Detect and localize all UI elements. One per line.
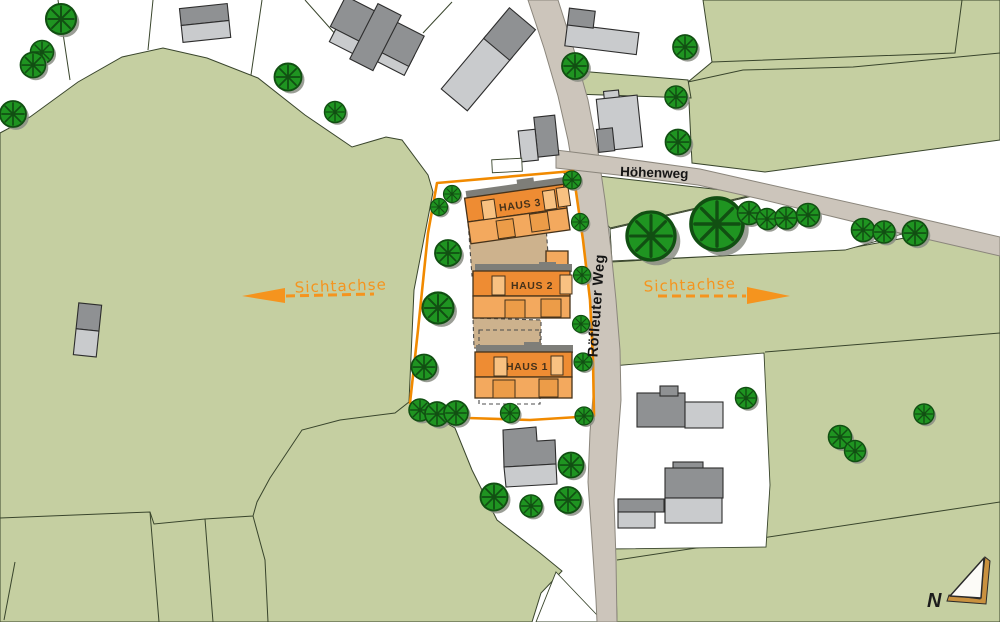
stair-bump <box>524 342 540 351</box>
barn-in-meadow <box>73 303 101 357</box>
haus-1-label: HAUS 1 <box>506 361 548 373</box>
shed-north-plot <box>492 158 523 173</box>
north-letter: N <box>927 590 942 612</box>
hoehenweg-label: Höhenweg <box>620 164 689 181</box>
field-northeast <box>688 0 1000 172</box>
sichtachse-east-label: Sichtachse <box>643 274 736 295</box>
window <box>539 379 558 397</box>
window <box>496 219 515 239</box>
site-plan-svg: HAUS 3 HAUS 2 HAUS 1 <box>0 0 1000 622</box>
building-northwest <box>179 4 230 43</box>
haus-2-building: HAUS 2 <box>473 262 572 318</box>
window <box>493 380 515 398</box>
site-plan: HAUS 3 HAUS 2 HAUS 1 <box>0 0 1000 622</box>
stair-bump <box>539 262 556 271</box>
window <box>560 275 572 294</box>
window <box>505 300 525 318</box>
window <box>529 212 549 232</box>
window <box>556 187 571 207</box>
window <box>542 190 557 210</box>
window <box>492 276 505 295</box>
window <box>481 199 497 220</box>
haus-1-building: HAUS 1 <box>475 342 573 398</box>
window <box>551 356 563 375</box>
haus-2-label: HAUS 2 <box>511 280 553 292</box>
window <box>541 299 561 317</box>
